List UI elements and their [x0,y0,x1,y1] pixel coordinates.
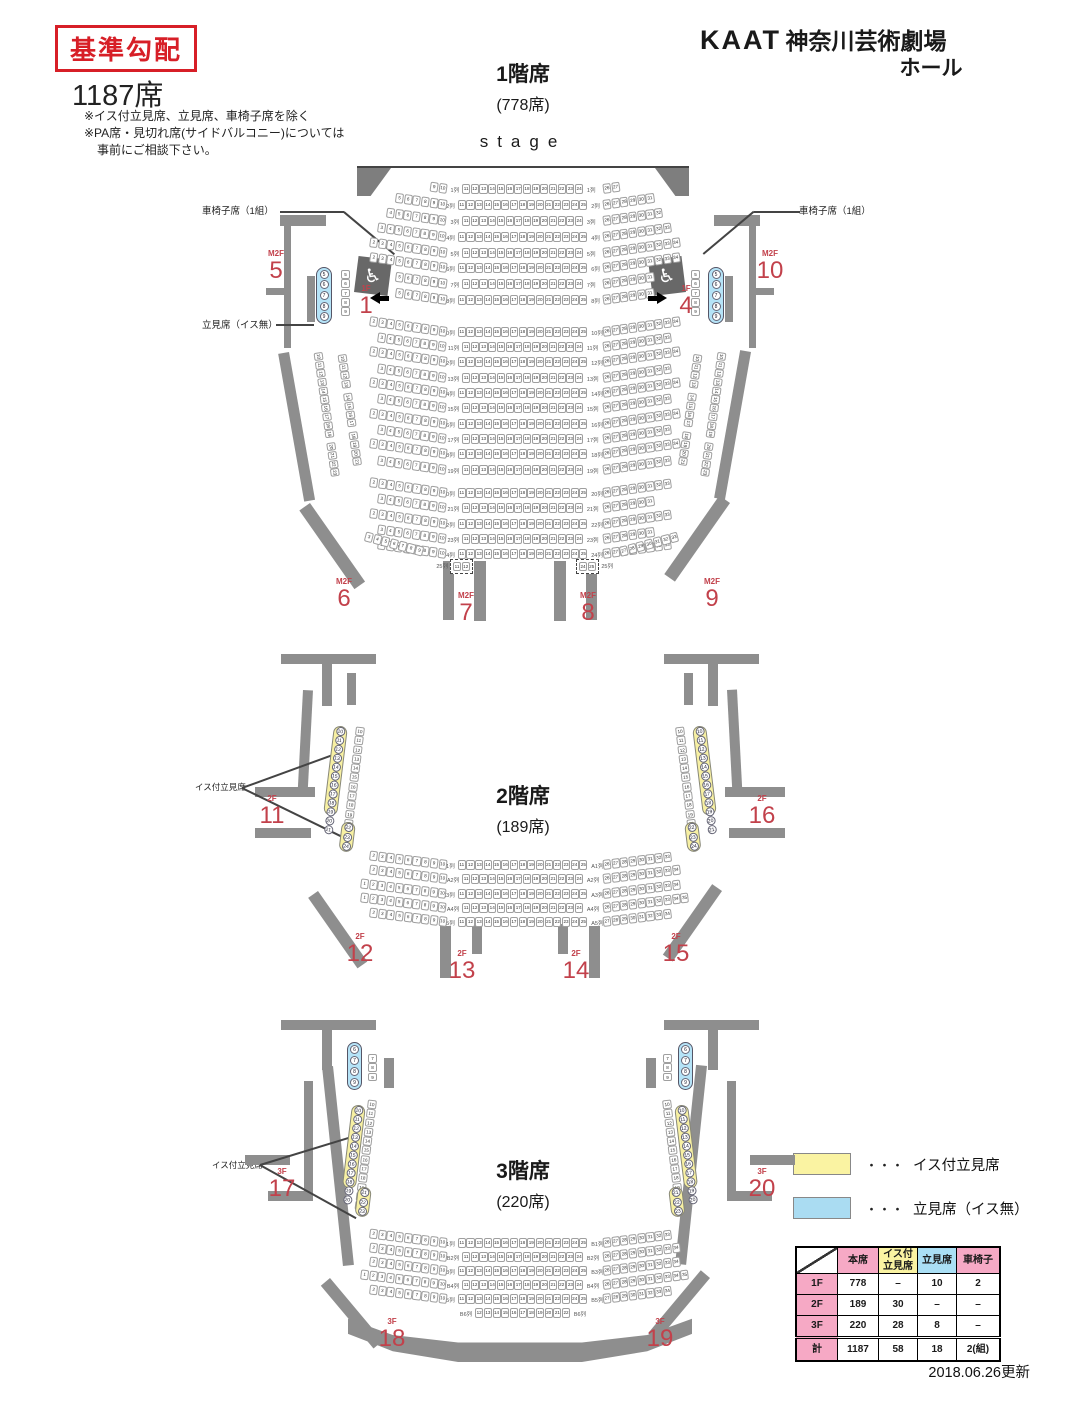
seat-10: 10 [438,231,447,242]
seat-19: 19 [527,357,535,367]
seat-18: 18 [523,534,531,544]
seat-7: 7 [412,870,421,881]
seat-32: 32 [654,255,663,266]
seat-32: 32 [654,319,663,330]
seat-20: 20 [540,248,548,258]
seat-2: 2 [369,865,378,876]
leader-line [276,324,314,326]
standing-slot-22: 22 [687,823,697,833]
standing-slot-6: 6 [712,280,721,289]
exit-number-label: 8 [570,601,606,625]
standing-slot-7: 7 [712,291,721,300]
seat-32: 32 [654,1273,663,1284]
seat-16: 16 [501,1266,509,1276]
seat-10: 10 [438,1293,447,1304]
seat-26: 26 [602,278,611,289]
exit-number-label: 12 [342,942,378,966]
exit-M2F-5: M2F5 [258,250,294,283]
seat-22: 22 [558,279,566,289]
seat-12: 12 [466,449,474,459]
seat-31: 31 [645,272,654,283]
capacity-table: 本席イス付 立見席立見席車椅子1F778–1022F18930––3F22028… [795,1246,1001,1362]
seat-22: 22 [558,216,566,226]
seat-12: 12 [471,403,479,413]
seat-24: 24 [575,373,583,383]
wall [725,276,733,322]
seat-29: 29 [628,856,637,867]
seat-1: 1 [360,1270,369,1281]
seat-7: 7 [663,1054,672,1063]
seat-15: 15 [493,200,501,210]
seat-23: 23 [562,263,570,273]
seat-13: 13 [317,378,328,387]
seat-13: 13 [352,754,362,764]
seat-18: 18 [519,327,527,337]
seat-2: 2 [369,438,378,449]
standing-slot-11: 11 [334,735,344,745]
seat-19: 19 [532,279,540,289]
wall [708,662,718,706]
seat-9: 9 [414,545,424,556]
seat-14: 14 [484,449,492,459]
seat-15: 15 [493,549,501,559]
seat-24: 24 [571,419,579,429]
seat-29: 29 [628,460,637,471]
seat-6: 6 [403,513,412,524]
seat-24: 24 [575,903,583,913]
legend-item-standing: ・・・ 立見席（イス無） [793,1197,1029,1219]
seat-14: 14 [488,1252,496,1262]
seat-14: 14 [484,295,492,305]
seat-11: 11 [458,488,466,498]
seat-21: 21 [545,419,553,429]
seat-25: 25 [579,1238,587,1248]
seat-16: 16 [506,279,514,289]
seat-3: 3 [377,1230,386,1241]
seat-27: 27 [611,887,620,898]
seat-30: 30 [637,1247,646,1258]
seat-35: 35 [680,893,689,904]
seat-17: 17 [510,449,518,459]
seat-12: 12 [466,1266,474,1276]
seat-13: 13 [475,200,483,210]
standing-slot-7: 7 [320,291,329,300]
seat-8: 8 [663,1063,672,1072]
seat-21: 21 [545,295,553,305]
seat-28: 28 [611,1292,620,1303]
seat-17: 17 [514,1280,522,1290]
seat-7: 7 [368,1054,377,1063]
seat-13: 13 [475,549,483,559]
seat-11: 11 [462,342,470,352]
seat-2: 2 [369,508,378,519]
seat-13: 13 [475,419,483,429]
seat-11: 11 [462,874,470,884]
seat-21: 21 [545,1266,553,1276]
seat-16: 16 [501,357,509,367]
seat-17: 17 [514,903,522,913]
seat-18: 18 [523,503,531,513]
seat-15: 15 [497,903,505,913]
seat-21: 21 [549,279,557,289]
seat-26: 26 [602,1279,611,1290]
stage-label: stage [423,132,623,152]
wall [307,276,315,322]
seat-19: 19 [527,388,535,398]
seat-8: 8 [420,1263,429,1274]
seat-17: 17 [510,357,518,367]
table-header-1: 本席 [838,1247,879,1274]
seat-7: 7 [412,243,421,254]
seat-5: 5 [395,1288,404,1299]
seat-15: 15 [668,1146,678,1156]
seat-11: 11 [676,736,686,746]
seat-9: 9 [429,447,438,458]
exit-number-label: 5 [258,259,294,283]
seat-34: 34 [671,237,680,248]
seat-14: 14 [488,342,496,352]
wall [266,288,284,295]
seat-3: 3 [377,510,386,521]
seat-28: 28 [620,871,629,882]
seat-11: 11 [458,357,466,367]
seat-15: 15 [501,1308,509,1318]
seat-33: 33 [663,239,672,250]
exit-number-label: 18 [374,1327,410,1351]
seat-29: 29 [628,529,637,540]
floor3-count: (220席) [423,1188,623,1212]
seat-16: 16 [501,860,509,870]
seat-16: 16 [506,434,514,444]
table-cell-2F-1: 30 [879,1295,918,1316]
seat-4: 4 [386,240,395,251]
seat-22: 22 [553,263,561,273]
seat-28: 28 [620,857,629,868]
seat-12: 12 [471,248,479,258]
seat-15: 15 [497,1252,505,1262]
seat-7: 7 [412,913,421,924]
seat-12: 12 [471,503,479,513]
seat-10: 10 [438,326,447,337]
seat-15: 15 [497,279,505,289]
seat-10: 10 [438,518,447,529]
seat-23: 23 [566,248,574,258]
seat-column: 789 [368,1054,377,1082]
seat-6: 6 [403,321,412,332]
seat-16: 16 [501,232,509,242]
seat-16: 16 [510,1308,518,1318]
seat-12: 12 [466,327,474,337]
seat-8: 8 [420,416,429,427]
seat-11: 11 [458,449,466,459]
exit-2F-14: 2F14 [558,950,594,983]
seat-row-left: 5678910 [395,272,448,289]
seat-11: 11 [462,903,470,913]
seat-15: 15 [493,860,501,870]
wall [750,1155,795,1165]
seat-20: 20 [536,388,544,398]
seat-16: 16 [506,403,514,413]
seat-27: 27 [611,872,620,883]
seat-17: 17 [510,200,518,210]
seat-17: 17 [514,342,522,352]
seat-29: 29 [628,1276,637,1287]
seat-row-center: A2列1112131415161718192021222324A2列 [462,874,584,884]
arrow-tail [648,296,657,301]
seat-18: 18 [519,295,527,305]
seat-15: 15 [493,327,501,337]
seat-31: 31 [645,193,654,204]
seat-12: 12 [471,342,479,352]
seat-34: 34 [671,408,680,419]
seat-33: 33 [663,394,672,405]
seat-13: 13 [688,380,699,389]
seat-31: 31 [637,1289,646,1300]
seat-19: 19 [527,263,535,273]
seat-11: 11 [458,327,466,337]
seat-16: 16 [501,327,509,337]
seat-22: 22 [558,874,566,884]
seat-10: 10 [438,873,447,884]
seat-20: 20 [540,503,548,513]
seat-23: 23 [562,327,570,337]
seat-24: 24 [575,1280,583,1290]
seat-19: 19 [532,903,540,913]
seat-16: 16 [506,465,514,475]
seat-12: 12 [466,388,474,398]
table-cell-2F-0: 189 [838,1295,879,1316]
seat-15: 15 [493,1294,501,1304]
updated-date: 2018.06.26更新 [880,1361,1030,1382]
seat-22: 22 [558,503,566,513]
seat-33: 33 [663,866,672,877]
table-cell-計-1: 58 [879,1338,918,1362]
seat-11: 11 [462,534,470,544]
exit-M2F-7: M2F7 [448,592,484,625]
seat-14: 14 [687,393,698,402]
seat-29: 29 [628,352,637,363]
seat-19: 19 [527,200,535,210]
seat-8: 8 [420,260,429,271]
standing-area: 56789 [708,267,724,324]
seat-18: 18 [519,357,527,367]
seat-24: 24 [571,889,579,899]
row-label: B5列 [591,1296,603,1304]
seat-10: 10 [438,418,447,429]
seat-6: 6 [403,869,412,880]
seat-row-center: 8列1112131415161718192021222324258列 [458,295,589,305]
seat-34: 34 [671,880,680,891]
seat-15: 15 [685,401,696,410]
seat-14: 14 [488,434,496,444]
seat-7: 7 [412,1234,421,1245]
seat-26: 26 [602,1265,611,1276]
seat-18: 18 [358,1173,368,1183]
seat-21: 21 [678,457,689,466]
seat-35: 35 [680,1270,689,1281]
seat-19: 19 [532,403,540,413]
seat-21: 21 [545,889,553,899]
seat-23: 23 [566,279,574,289]
row-label: 25列 [601,562,613,570]
seat-32: 32 [646,911,655,922]
seat-23: 23 [562,388,570,398]
standing-with-chair-area: 212223 [354,1186,372,1217]
seat-17: 17 [514,403,522,413]
seat-23: 23 [566,373,574,383]
exit-number-label: 13 [444,959,480,983]
seat-21: 21 [327,451,338,460]
seat-32: 32 [654,380,663,391]
seat-32: 32 [654,853,663,864]
exit-3F-20: 3F20 [744,1168,780,1201]
seat-2: 2 [369,252,378,263]
table-cell-3F-1: 28 [879,1316,918,1338]
seat-20: 20 [536,232,544,242]
seat-14: 14 [484,232,492,242]
seat-10: 10 [438,387,447,398]
exit-2F-13: 2F13 [444,950,480,983]
seat-33: 33 [663,1244,672,1255]
seat-15: 15 [497,342,505,352]
seat-21: 21 [549,1252,557,1262]
seat-11: 11 [458,889,466,899]
seat-30: 30 [628,913,637,924]
seat-34: 34 [671,252,680,263]
seat-19: 19 [527,549,535,559]
seat-29: 29 [628,383,637,394]
seat-22: 22 [553,357,561,367]
seat-16: 16 [506,503,514,513]
seat-22: 22 [553,1238,561,1248]
seat-21: 21 [549,216,557,226]
seat-12: 12 [462,562,470,572]
seat-17: 17 [510,1266,518,1276]
seat-15: 15 [497,403,505,413]
seat-24: 24 [571,263,579,273]
seat-13: 13 [484,1308,492,1318]
venue-logo: KAAT [700,25,781,55]
seat-11: 11 [366,1109,376,1119]
standing-slot-22: 22 [358,1197,368,1207]
standing-slot-8: 8 [320,302,329,311]
seat-28: 28 [620,886,629,897]
seat-31: 31 [646,897,655,908]
seat-11: 11 [458,549,466,559]
seat-14: 14 [493,1308,501,1318]
seat-29: 29 [628,414,637,425]
seat-29: 29 [628,211,637,222]
seat-10: 10 [716,352,727,361]
seat-12: 12 [466,488,474,498]
exit-number-label: 20 [744,1177,780,1201]
seat-29: 29 [628,290,637,301]
seat-8: 8 [420,245,429,256]
seat-21: 21 [549,434,557,444]
seat-16: 16 [506,1252,514,1262]
seat-3: 3 [377,1286,386,1297]
seat-5: 5 [395,512,404,523]
seat-10: 10 [438,548,447,559]
seat-11: 11 [458,1266,466,1276]
seat-5: 5 [395,911,404,922]
legend-swatch-yellow [793,1153,851,1175]
seat-19: 19 [532,534,540,544]
seat-25: 25 [579,488,587,498]
standing-slot-6: 6 [681,1045,690,1054]
wall [646,1058,656,1088]
seating-chart-canvas: 基準勾配 1187席 ※イス付立見席、立見席、車椅子席を除く ※PA席・見切れ席… [0,0,1090,1407]
table-cell-計-2: 18 [918,1338,957,1362]
seat-15: 15 [493,889,501,899]
seat-12: 12 [466,889,474,899]
seat-row-center: A1列111213141516171819202122232425A1列 [458,860,589,870]
row-label: 21列 [447,505,459,513]
seat-5: 5 [395,854,404,865]
seat-9: 9 [429,517,438,528]
seat-22: 22 [553,549,561,559]
seat-17: 17 [514,1252,522,1262]
wall [255,828,311,838]
seat-4: 4 [386,1273,395,1284]
seat-17: 17 [510,519,518,529]
seat-21: 21 [545,327,553,337]
seat-19: 19 [532,248,540,258]
row-label: 14列 [591,390,603,398]
seat-row-center: A5列111213141516171819202122232425A5列 [458,917,589,927]
exit-number-label: 14 [558,959,594,983]
seat-20: 20 [536,1238,544,1248]
seat-13: 13 [479,434,487,444]
wall [347,673,356,705]
seat-21: 21 [545,860,553,870]
venue-title: KAAT 神奈川芸術劇場 [700,22,1012,56]
seat-17: 17 [347,791,357,801]
seat-15: 15 [493,1238,501,1248]
seat-25: 25 [579,549,587,559]
seat-26: 26 [602,448,611,459]
seat-7: 7 [412,322,421,333]
seat-26: 26 [602,518,611,529]
seat-26: 26 [602,902,611,913]
seat-row-center: 4列1112131415161718192021222324254列 [458,232,589,242]
seat-row-center: B1列111213141516171819202122232425B1列 [458,1238,589,1248]
exit-2F-11: 2F11 [254,795,290,828]
seat-32: 32 [654,441,663,452]
seat-12: 12 [466,917,474,927]
seat-11: 11 [462,503,470,513]
standing-slot-14: 14 [349,1141,359,1151]
standing-slot-23: 23 [688,832,698,842]
seat-18: 18 [671,1173,681,1183]
row-label: 20列 [591,490,603,498]
seat-19: 19 [532,184,540,194]
seat-14: 14 [488,184,496,194]
seat-29: 29 [628,514,637,525]
seat-32: 32 [654,208,663,219]
seat-12: 12 [466,1238,474,1248]
seat-21: 21 [549,342,557,352]
seat-9: 9 [429,486,438,497]
seat-10: 10 [438,183,447,194]
seat-29: 29 [628,243,637,254]
seat-3: 3 [377,318,386,329]
exit-number-label: 4 [668,294,704,318]
seat-row-center: B3列111213141516171819202122232425B3列 [458,1266,589,1276]
seat-17: 17 [510,388,518,398]
seat-34: 34 [671,1257,680,1268]
exit-1F-4: 1F4 [668,285,704,318]
